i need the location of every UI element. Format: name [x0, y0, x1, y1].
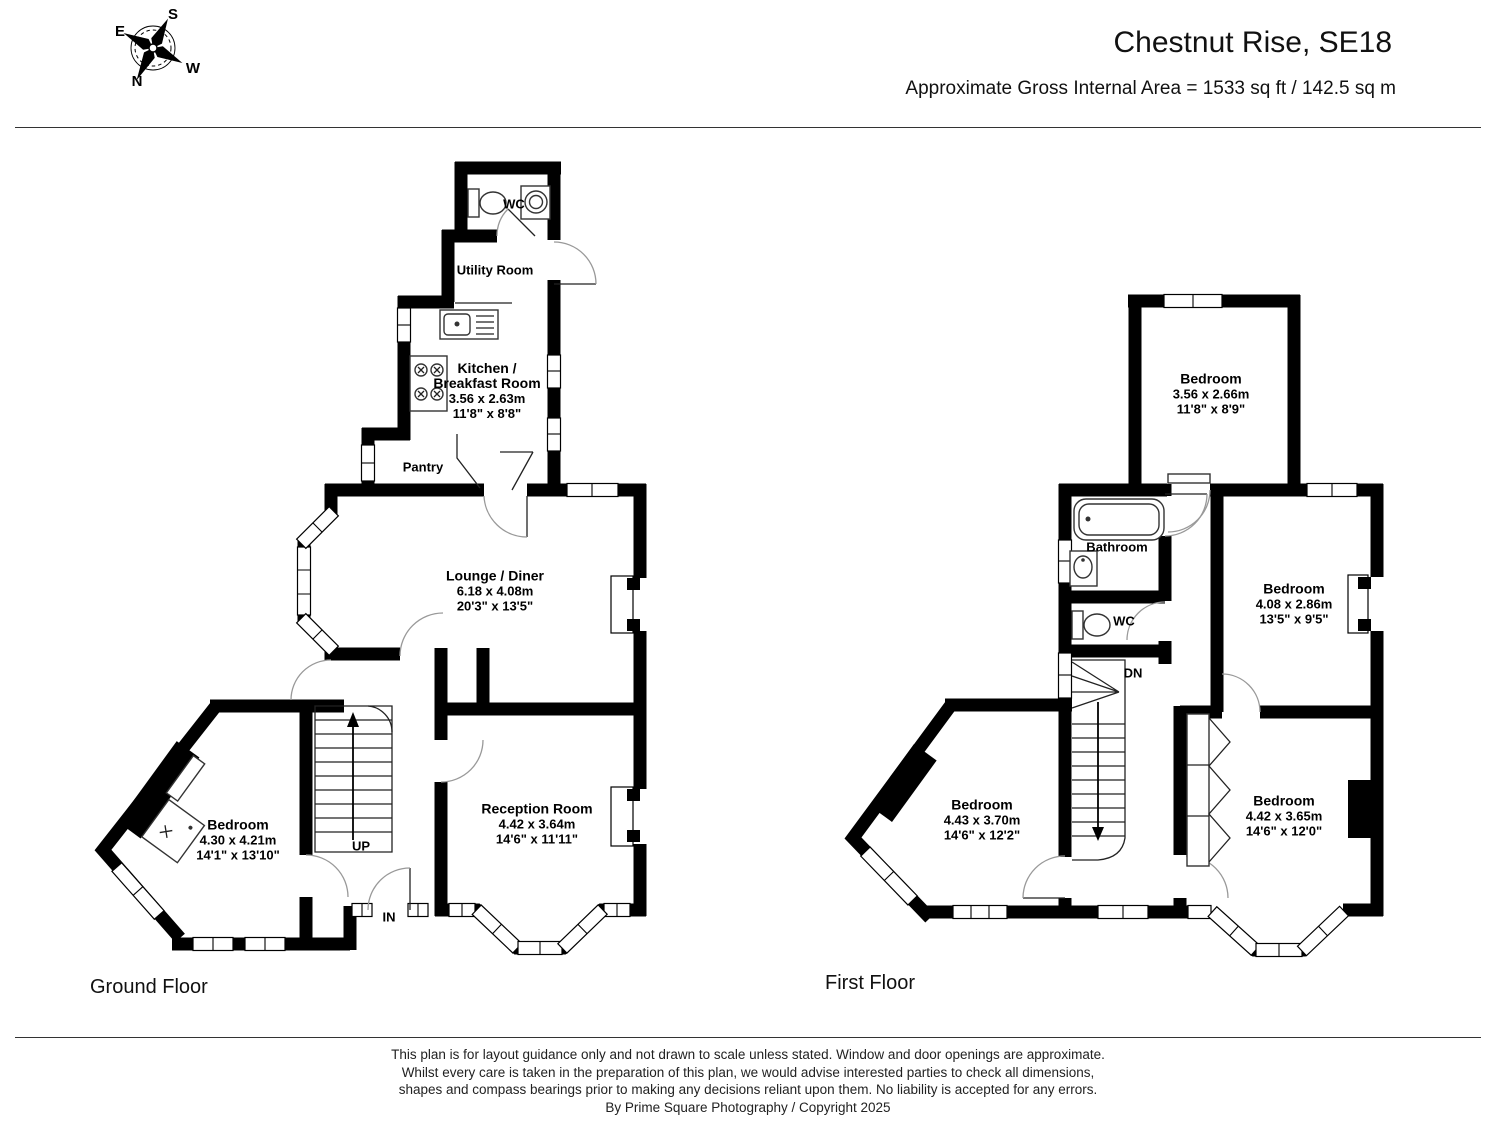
disclaimer-line-4: By Prime Square Photography / Copyright … [0, 1099, 1496, 1117]
footer-divider [15, 1037, 1481, 1038]
room-label-kitchen: Kitchen / Breakfast Room 3.56 x 2.63m 11… [433, 361, 540, 421]
compass-north: N [132, 73, 143, 90]
gf-windows [112, 308, 648, 955]
compass-south: S [168, 6, 178, 23]
page-subtitle: Approximate Gross Internal Area = 1533 s… [905, 78, 1396, 100]
compass-icon: S E W N [115, 6, 201, 90]
bath-icon [1074, 499, 1164, 540]
ff-basin-icon [1070, 551, 1097, 586]
entrance-in-label: IN [383, 910, 396, 925]
room-label-gf-wc: WC [503, 197, 525, 212]
wardrobe-icon [1187, 714, 1230, 866]
room-label-ff-bedroom-right: Bedroom 4.08 x 2.86m 13'5" x 9'5" [1256, 582, 1333, 627]
disclaimer-line-2: Whilst every care is taken in the prepar… [0, 1064, 1496, 1082]
ff-toilet-icon [1072, 611, 1110, 639]
room-label-ff-bedroom-top: Bedroom 3.56 x 2.66m 11'8" x 8'9" [1173, 372, 1250, 417]
ff-stairs [1072, 660, 1125, 860]
room-label-gf-bedroom: Bedroom 4.30 x 4.21m 14'1" x 13'10" [196, 818, 280, 863]
stairs-up-label: UP [352, 839, 370, 854]
room-label-lounge: Lounge / Diner 6.18 x 4.08m 20'3" x 13'5… [446, 569, 544, 614]
compass-east: E [115, 23, 125, 40]
floorplan-page: S E W N [0, 0, 1496, 1128]
disclaimer-line-1: This plan is for layout guidance only an… [0, 1046, 1496, 1064]
page-title: Chestnut Rise, SE18 [1114, 26, 1392, 60]
first-floor-label: First Floor [825, 972, 915, 995]
toilet-icon [468, 189, 506, 217]
room-label-utility: Utility Room [457, 263, 534, 278]
chimney-breast-left [869, 744, 936, 822]
room-label-ff-bedroom-left: Bedroom 4.43 x 3.70m 14'6" x 12'2" [944, 798, 1021, 843]
room-label-pantry: Pantry [403, 460, 443, 475]
chimney-breast-right [1348, 780, 1372, 838]
stairs-dn-label: DN [1124, 666, 1143, 681]
disclaimer-line-3: shapes and compass bearings prior to mak… [0, 1081, 1496, 1099]
room-label-ff-wc: WC [1113, 614, 1135, 629]
room-label-ff-bedroom-bottom: Bedroom 4.42 x 3.65m 14'6" x 12'0" [1246, 794, 1323, 839]
basin-icon [521, 186, 550, 219]
compass-west: W [186, 60, 201, 77]
gf-stairs [315, 706, 392, 852]
disclaimer: This plan is for layout guidance only an… [0, 1046, 1496, 1116]
floor-plan-drawing: S E W N [0, 0, 1496, 1128]
room-label-reception: Reception Room 4.42 x 3.64m 14'6" x 11'1… [481, 802, 592, 847]
room-label-bathroom: Bathroom [1086, 540, 1147, 555]
ground-floor-label: Ground Floor [90, 976, 208, 999]
sink-icon [440, 310, 498, 339]
header-divider [15, 127, 1481, 128]
